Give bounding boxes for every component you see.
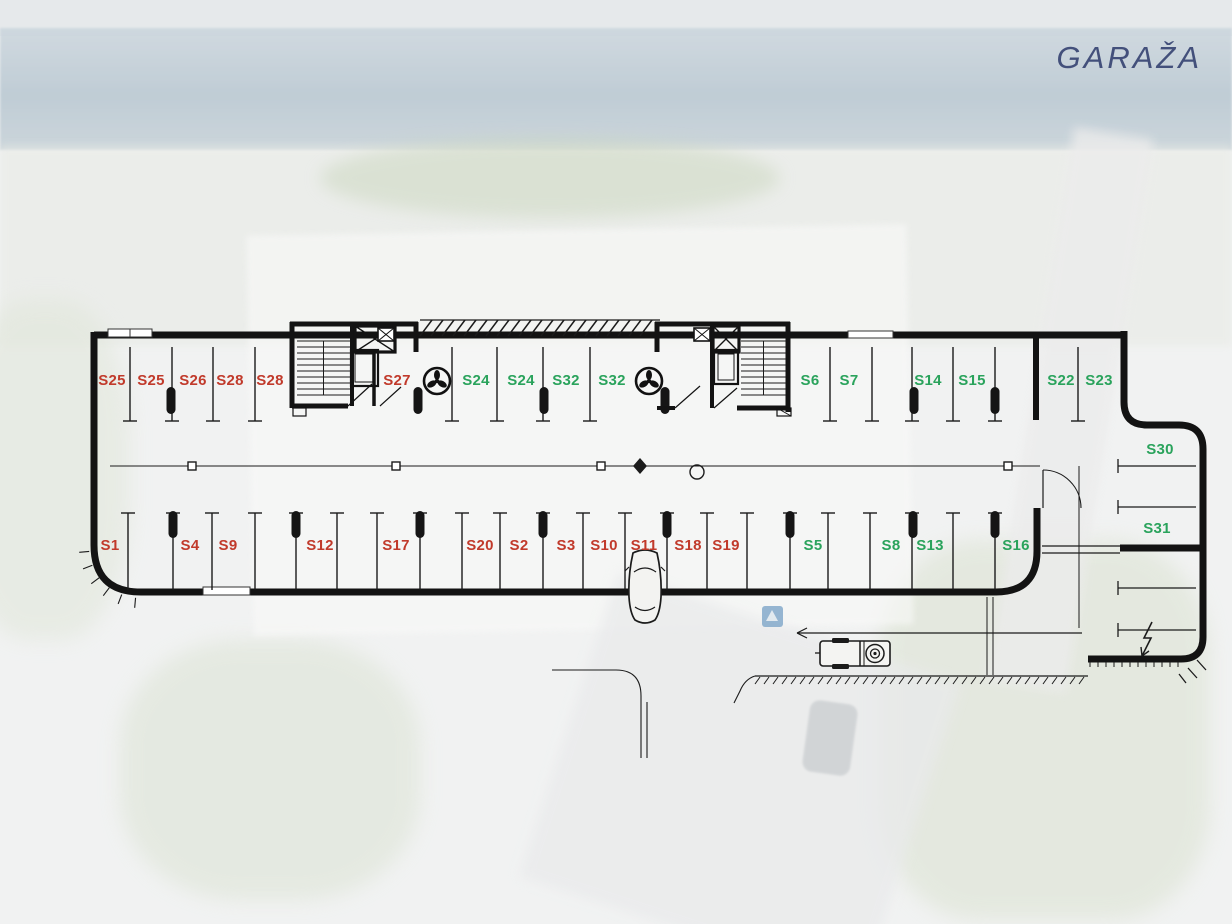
- floor-plan: [0, 0, 1232, 924]
- stall-divider-lines-top: [123, 347, 1085, 421]
- fan-icon: [636, 368, 662, 394]
- stairs-left: [297, 341, 350, 395]
- corner-hatch-marks: [1179, 660, 1206, 683]
- tow-vehicle-icon: [815, 638, 890, 669]
- stairs-right: [741, 341, 786, 395]
- stall-divider-lines-bottom: [121, 513, 1002, 590]
- lightning-icon: [1141, 622, 1152, 656]
- garage-plan-page: S25S25S26S28S28S27S24S24S32S32S6S7S14S15…: [0, 0, 1232, 924]
- aisle-centerline: [110, 458, 1040, 479]
- ground-hatch-line: [755, 676, 1088, 684]
- wall-tick-marks: [1090, 662, 1178, 667]
- fan-icon: [424, 368, 450, 394]
- car-top-icon: [625, 550, 665, 623]
- page-title: GARAŽA: [1057, 40, 1202, 76]
